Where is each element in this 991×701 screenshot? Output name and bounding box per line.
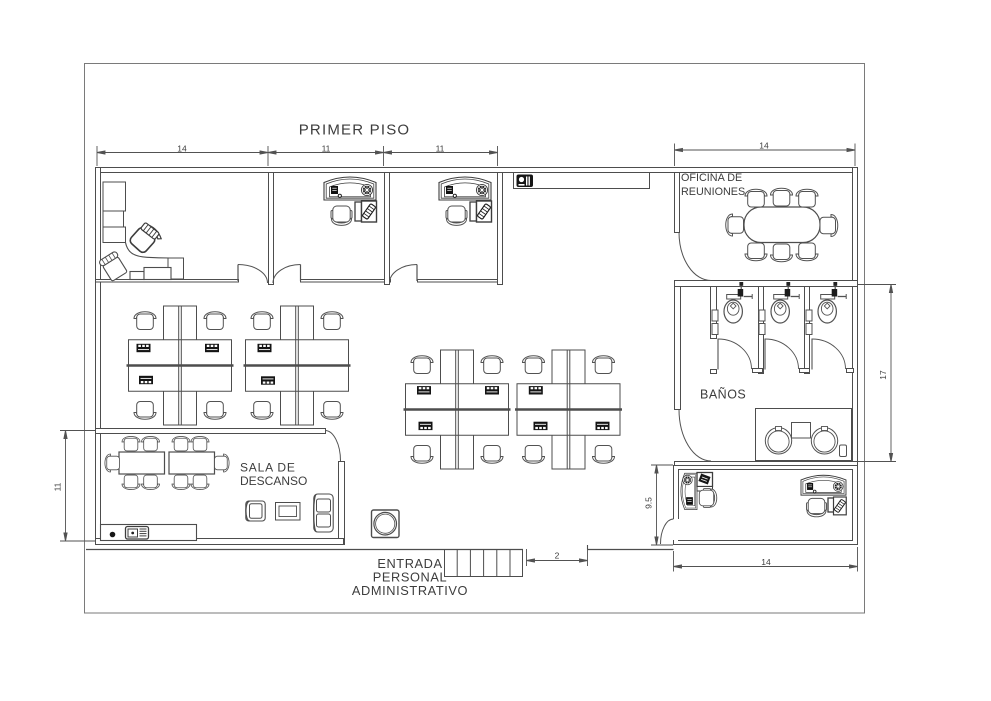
svg-text:PRIMER PISO: PRIMER PISO bbox=[299, 122, 411, 139]
svg-text:SALA DE: SALA DE bbox=[240, 461, 296, 475]
svg-text:11: 11 bbox=[322, 144, 331, 154]
svg-text:17: 17 bbox=[878, 370, 888, 380]
svg-text:BAÑOS: BAÑOS bbox=[700, 388, 746, 402]
svg-text:14: 14 bbox=[759, 141, 769, 151]
svg-text:9.5: 9.5 bbox=[644, 497, 654, 509]
svg-text:REUNIONES: REUNIONES bbox=[681, 186, 745, 198]
svg-text:OFICINA DE: OFICINA DE bbox=[681, 172, 742, 184]
svg-text:14: 14 bbox=[761, 557, 771, 567]
svg-text:ADMINISTRATIVO: ADMINISTRATIVO bbox=[352, 583, 468, 598]
svg-text:14: 14 bbox=[177, 144, 187, 154]
svg-text:11: 11 bbox=[53, 482, 63, 491]
svg-text:11: 11 bbox=[436, 144, 445, 154]
svg-text:2: 2 bbox=[555, 551, 560, 561]
svg-text:DESCANSO: DESCANSO bbox=[240, 474, 307, 488]
